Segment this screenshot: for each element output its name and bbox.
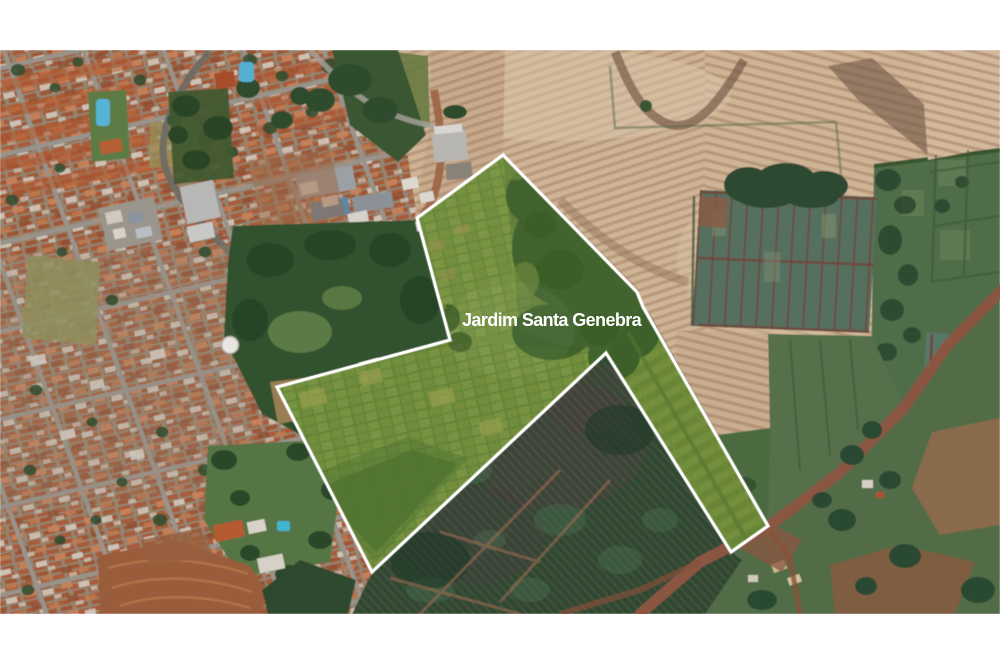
svg-text:Jardim Santa Genebra: Jardim Santa Genebra [462, 310, 643, 330]
